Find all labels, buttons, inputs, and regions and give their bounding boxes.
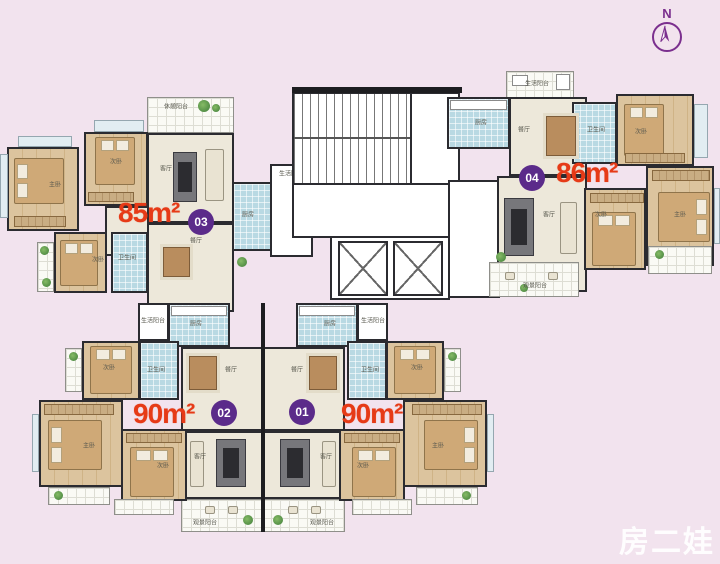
area-label-u02: 90m² — [133, 400, 194, 428]
watermark: 房二娃 — [619, 517, 715, 561]
sofa — [560, 202, 577, 254]
dining-table — [309, 356, 337, 390]
room-label: 主卧 — [674, 213, 686, 220]
plant — [243, 515, 253, 525]
dining-table — [546, 116, 576, 156]
room-label: 次卧 — [103, 366, 115, 373]
bay-window-u01-master — [487, 414, 494, 472]
balcony-chair — [548, 272, 558, 280]
area-label-u04: 86m² — [556, 159, 617, 187]
room-label: 次卧 — [92, 258, 104, 265]
balcony-chair — [205, 506, 215, 514]
plant — [69, 352, 78, 361]
room-label: 厨房 — [324, 322, 336, 329]
plant — [212, 104, 220, 112]
wardrobe — [126, 433, 182, 443]
party-wall — [261, 303, 265, 532]
plant — [198, 100, 210, 112]
plant — [448, 352, 457, 361]
kitchen-counter — [450, 100, 507, 110]
room-label: 客厅 — [160, 167, 172, 174]
wardrobe — [625, 153, 685, 163]
wardrobe — [344, 433, 400, 443]
sofa — [190, 441, 204, 487]
plant — [496, 252, 506, 262]
room-u03-rest-balcony — [147, 97, 234, 133]
room-label: 卫生间 — [147, 368, 165, 375]
bay-window-u03-master-left — [0, 154, 8, 218]
plant — [237, 257, 247, 267]
plant — [54, 491, 63, 500]
room-label: 餐厅 — [518, 128, 530, 135]
room-label: 卫生间 — [361, 368, 379, 375]
bed — [592, 212, 636, 266]
plant — [40, 246, 49, 255]
room-u03-bath — [111, 232, 148, 293]
bay-window-u02-master — [32, 414, 39, 472]
sofa — [322, 441, 336, 487]
north-label: N — [650, 6, 684, 21]
room-label: 餐厅 — [291, 368, 303, 375]
bed — [352, 447, 396, 497]
tv-wall — [504, 198, 534, 256]
room-label: 餐厅 — [225, 368, 237, 375]
north-indicator: N — [650, 6, 684, 52]
room-label: 厨房 — [190, 322, 202, 329]
room-label: 客厅 — [194, 455, 206, 462]
room-label: 卫生间 — [587, 128, 605, 135]
balcony-u02-bed-b — [114, 499, 174, 515]
area-label-u03: 85m² — [118, 199, 179, 227]
room-label: 休憩阳台 — [164, 105, 188, 112]
core-corridor — [292, 183, 460, 238]
elevator-shaft — [338, 241, 388, 296]
area-label-u01: 90m² — [341, 400, 402, 428]
wardrobe — [652, 170, 710, 181]
wardrobe — [412, 404, 482, 415]
unit-badge-u04: 04 — [519, 165, 545, 191]
room-label: 餐厅 — [190, 239, 202, 246]
room-label: 观景阳台 — [193, 521, 217, 528]
balcony-chair — [311, 506, 321, 514]
wardrobe — [590, 193, 644, 203]
room-label: 卫生间 — [118, 256, 136, 263]
room-label: 次卧 — [157, 464, 169, 471]
wardrobe — [14, 216, 66, 227]
wardrobe — [44, 404, 114, 415]
balcony-u04-view — [489, 262, 579, 297]
dining-table — [189, 356, 217, 390]
tv-wall — [280, 439, 310, 487]
bay-window-u03-master-top — [18, 136, 72, 147]
kitchen-counter — [171, 306, 227, 316]
balcony-chair — [288, 506, 298, 514]
plant — [655, 250, 664, 259]
kitchen-counter — [299, 306, 355, 316]
room-label: 主卧 — [49, 183, 61, 190]
washer — [556, 74, 570, 90]
unit-badge-u01: 01 — [289, 399, 315, 425]
tv-wall — [173, 152, 197, 202]
bed — [130, 447, 174, 497]
room-label: 次卧 — [110, 160, 122, 167]
compass-icon — [652, 22, 682, 52]
room-label: 生活阳台 — [361, 319, 385, 326]
bay-window-u04-bed-a — [694, 104, 708, 158]
bay-window-u03-bed-a — [94, 120, 144, 132]
room-label: 观景阳台 — [523, 284, 547, 291]
wall-segment — [292, 87, 462, 93]
unit-badge-u02: 02 — [211, 400, 237, 426]
plant — [42, 278, 51, 287]
dining-table — [163, 247, 190, 277]
room-u03-dining — [147, 223, 234, 312]
staircase — [292, 92, 412, 185]
elevator-shaft — [393, 241, 443, 296]
room-label: 客厅 — [543, 213, 555, 220]
unit-badge-u03: 03 — [188, 209, 214, 235]
room-label: 主卧 — [432, 444, 444, 451]
room-label: 次卧 — [357, 464, 369, 471]
room-label: 厨房 — [242, 213, 254, 220]
balcony-chair — [505, 272, 515, 280]
bay-window-u04-master — [714, 188, 720, 244]
tv-wall — [216, 439, 246, 487]
room-label: 次卧 — [635, 130, 647, 137]
room-label: 次卧 — [411, 366, 423, 373]
room-label: 生活阳台 — [525, 82, 549, 89]
bed — [14, 158, 64, 204]
sofa — [205, 149, 224, 201]
balcony-chair — [228, 506, 238, 514]
room-label: 主卧 — [83, 444, 95, 451]
plant — [273, 515, 283, 525]
room-label: 客厅 — [320, 455, 332, 462]
floor-plan: 休憩阳台 客厅 餐厅 次卧 主卧 次卧 卫生间 厨房 生活阳台 生活阳台 厨房 … — [0, 0, 720, 564]
room-label: 厨房 — [475, 121, 487, 128]
room-label: 生活阳台 — [141, 319, 165, 326]
room-label: 次卧 — [595, 213, 607, 220]
plant — [462, 491, 471, 500]
balcony-u01-bed-b — [352, 499, 412, 515]
room-label: 观景阳台 — [310, 521, 334, 528]
